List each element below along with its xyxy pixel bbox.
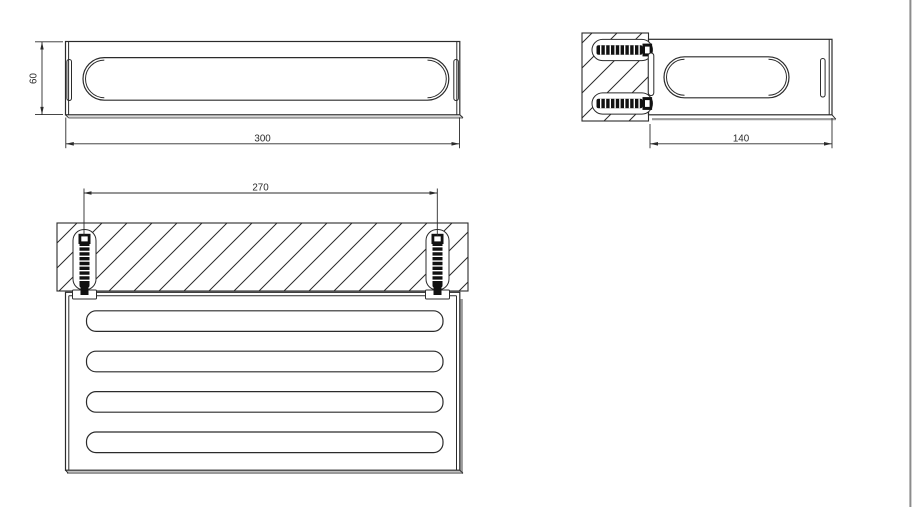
- plan-screw-tip-left: [81, 287, 89, 295]
- technical-drawing: 60 300: [0, 0, 913, 507]
- plan-view: [57, 223, 468, 473]
- front-view-body: [66, 42, 460, 115]
- plan-shelf-outline: [66, 292, 460, 470]
- front-left-end-tab: [67, 60, 72, 101]
- side-anchor-screw-top: [592, 39, 653, 60]
- arrow-down: [40, 107, 43, 115]
- plan-screw-tip-right: [434, 287, 442, 295]
- dim-side-depth-label: 140: [733, 133, 750, 144]
- arrow-right: [824, 142, 832, 146]
- side-view: [582, 33, 836, 121]
- side-slot-inner-arc-right: [769, 59, 787, 95]
- side-end-tab: [821, 59, 826, 98]
- side-slot-inner-arc-left: [667, 59, 685, 95]
- arrow-right: [452, 142, 460, 146]
- arrow-left: [84, 191, 92, 194]
- side-anchor-screw-bottom: [592, 93, 653, 114]
- dim-mount-spacing-label: 270: [252, 183, 269, 194]
- arrow-up: [40, 42, 43, 50]
- front-slot-inner-arc-right: [428, 60, 447, 98]
- dim-front-width-label: 300: [254, 133, 271, 144]
- arrow-right: [430, 191, 438, 194]
- plan-slot-4: [87, 432, 444, 453]
- dimension-front-height: 60: [29, 42, 64, 115]
- dim-front-height-label: 60: [29, 73, 40, 84]
- arrow-left: [66, 142, 74, 146]
- plan-shelf-body: [66, 292, 460, 470]
- arrow-left: [650, 142, 658, 146]
- side-slot: [664, 57, 789, 98]
- plan-slot-3: [87, 392, 444, 413]
- front-slot: [83, 58, 449, 101]
- dimension-front-width: 300: [66, 118, 460, 149]
- side-view-body: [649, 39, 833, 115]
- plan-slot-2: [87, 351, 444, 372]
- cad-sheet: 60 300: [0, 0, 913, 507]
- plan-wall-section: [57, 223, 468, 291]
- dimension-side-depth: 140: [650, 118, 832, 148]
- plan-anchor-screw-right: [426, 230, 449, 291]
- front-view: [66, 42, 464, 118]
- front-right-end-tab: [454, 60, 459, 101]
- plan-slot-1: [87, 311, 444, 332]
- side-mount-bracket: [648, 53, 654, 96]
- front-slot-inner-arc-left: [86, 60, 105, 98]
- plan-anchor-screw-left: [73, 230, 96, 291]
